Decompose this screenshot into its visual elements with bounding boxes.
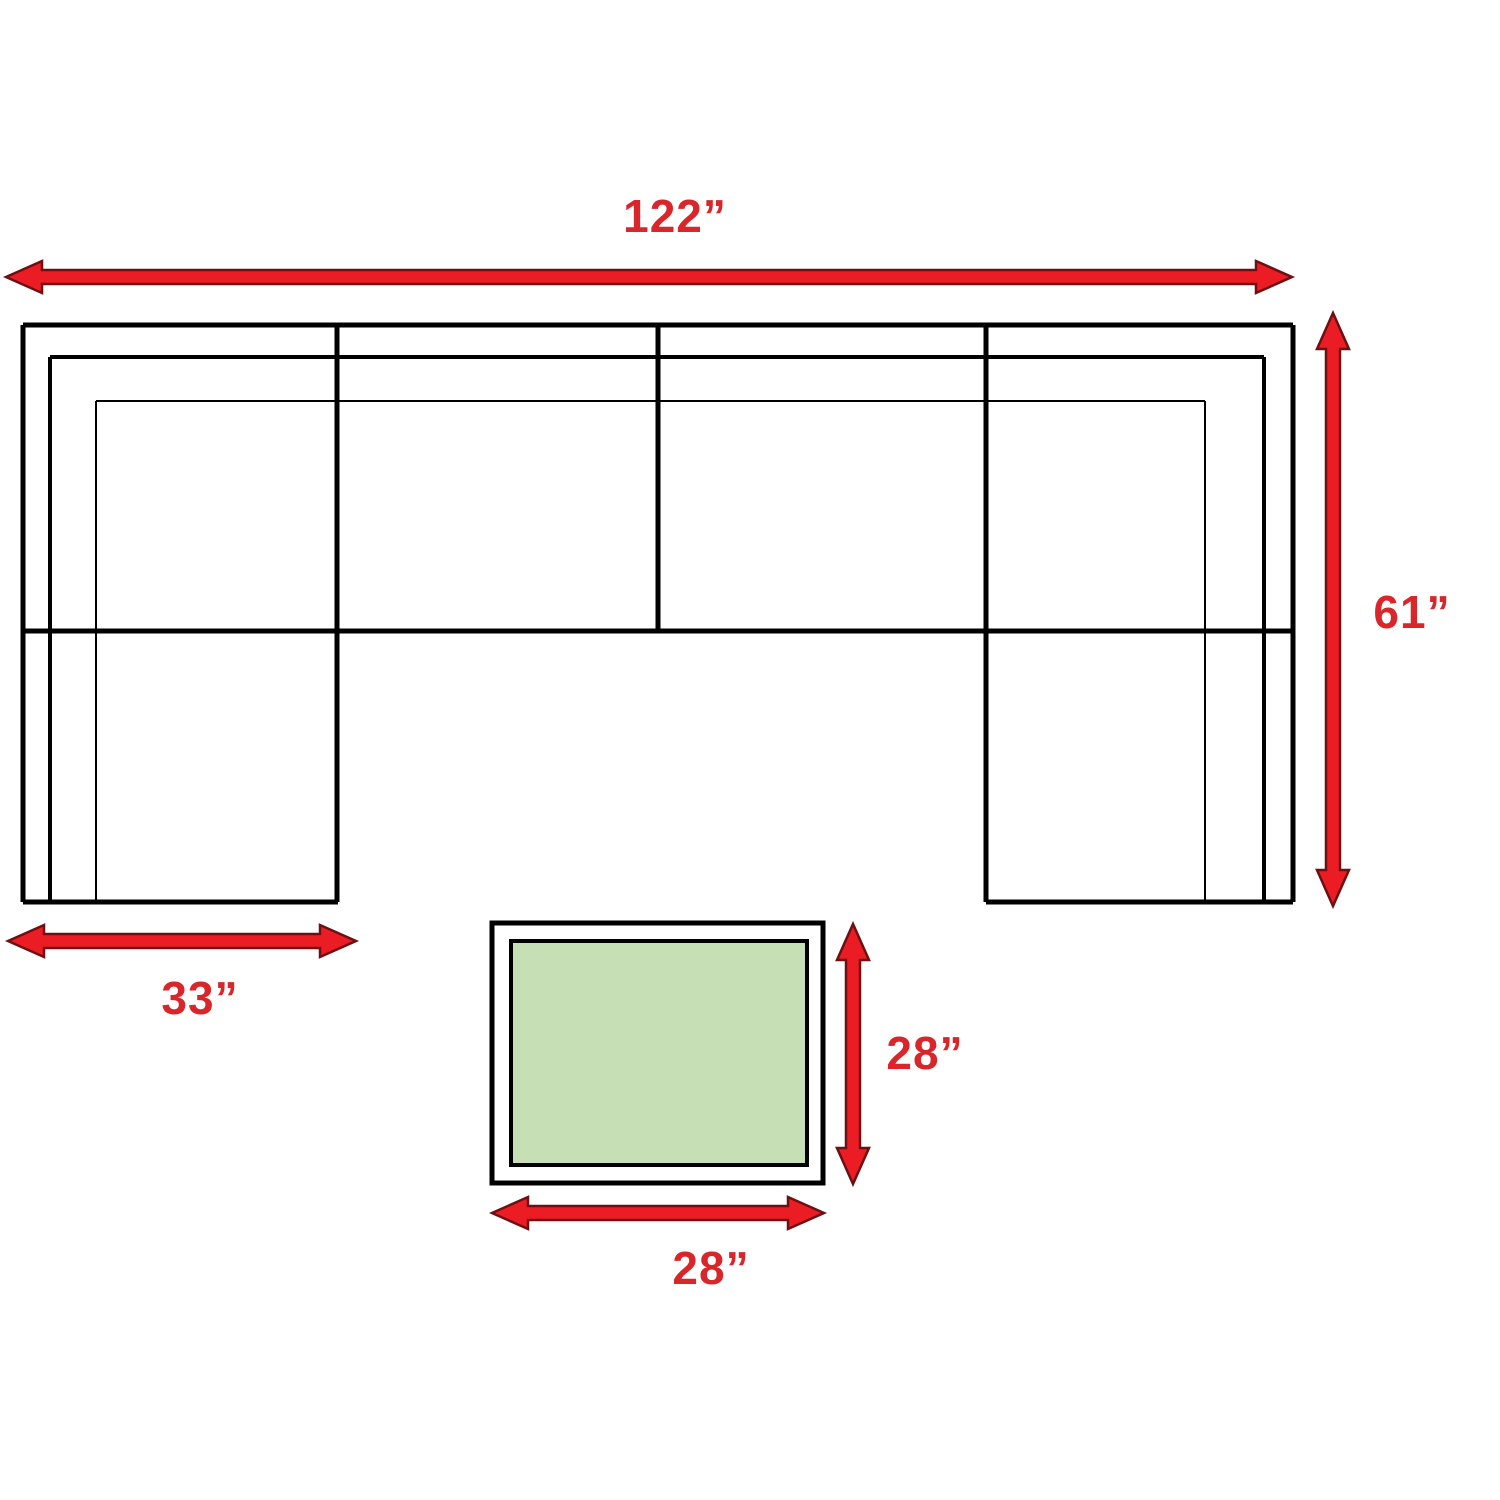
table-width-arrow-icon xyxy=(492,1197,824,1229)
table-top xyxy=(511,941,807,1165)
chaise-width-dimension-label: 33” xyxy=(161,975,238,1021)
sofa-outline-group xyxy=(23,325,1293,902)
sofa-width-dimension-label: 122” xyxy=(623,193,727,239)
table-depth-dimension-label: 28” xyxy=(886,1030,963,1076)
sofa-width-arrow-icon xyxy=(6,261,1292,293)
chaise-width-arrow-icon xyxy=(8,925,356,957)
sofa-depth-dimension-label: 61” xyxy=(1373,589,1450,635)
table-width-dimension-label: 28” xyxy=(672,1245,749,1291)
furniture-dimension-diagram: 122” 61” 33” 28” 28” xyxy=(0,0,1500,1500)
sofa-section-dividers xyxy=(337,325,986,902)
sofa-depth-arrow-icon xyxy=(1317,313,1349,906)
table-depth-arrow-icon xyxy=(837,924,869,1184)
diagram-drawing xyxy=(0,0,1500,1500)
coffee-table-group xyxy=(492,923,823,1183)
sofa-cushion-line xyxy=(96,401,1205,902)
